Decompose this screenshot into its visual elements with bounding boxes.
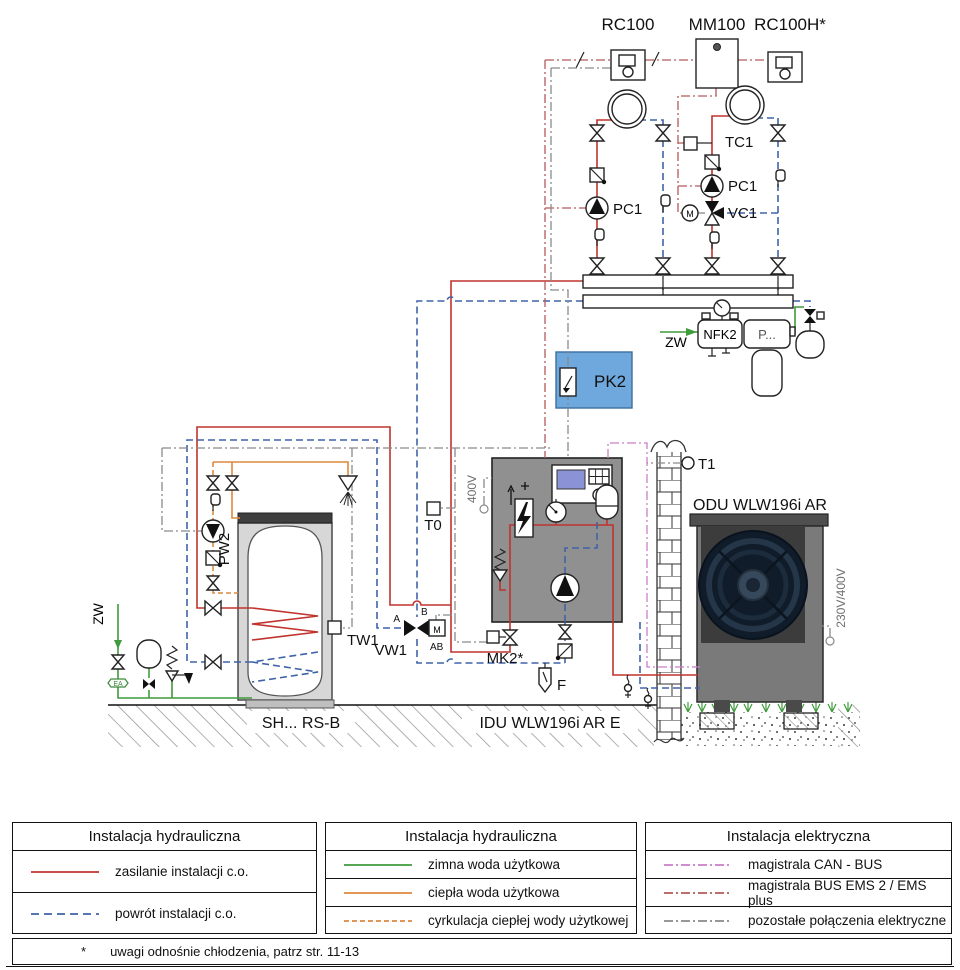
gate-valve-icon: [205, 655, 221, 669]
power-terminal-400v: [480, 505, 488, 513]
valve-icon: [226, 476, 238, 490]
legend-hydraulic-2: Instalacja hydrauliczna zimna woda użytk…: [325, 822, 637, 934]
valve-icon: [112, 655, 124, 669]
buffer-tank: [238, 513, 334, 708]
tc1-label: TC1: [725, 134, 753, 151]
footnote: * uwagi odnośnie chłodzenia, patrz str. …: [12, 938, 952, 965]
p-filter-label: P...: [758, 327, 776, 342]
footnote-text: uwagi odnośnie chłodzenia, patrz str. 11…: [110, 944, 359, 959]
line-sample-return: [29, 909, 101, 919]
legend-label: zimna woda użytkowa: [428, 857, 560, 872]
odu-name-label: ODU WLW196i AR: [693, 497, 827, 514]
legend-row: magistrala CAN - BUS: [646, 851, 951, 879]
legend-label: magistrala BUS EMS 2 / EMS plus: [748, 878, 951, 908]
odu-foot: [714, 700, 730, 712]
mm100-module: [696, 39, 738, 88]
legend-row: magistrala BUS EMS 2 / EMS plus: [646, 879, 951, 907]
f-filter-icon: [539, 663, 551, 692]
sensor-tc1-icon: [684, 137, 712, 150]
valve-icon: [207, 576, 219, 590]
pw2-label: PW2: [216, 533, 233, 566]
v400-label: 400V: [465, 475, 479, 503]
t0-label: T0: [424, 517, 442, 534]
rc100h-controller: [768, 52, 802, 82]
line-sample-circulation: [342, 916, 414, 926]
tank-name-label: SH... RS-B: [262, 715, 340, 732]
tw1-sensor: [328, 621, 341, 634]
v230-label: 230V/400V: [834, 568, 848, 627]
vw1-motor-label: M: [433, 625, 441, 635]
legend-row: cyrkulacja ciepłej wody użytkowej: [326, 907, 636, 934]
legend-label: zasilanie instalacji c.o.: [115, 864, 249, 879]
nfk2-filling-group: [698, 300, 795, 396]
odu-unit: [690, 514, 828, 712]
t0-sensor: [427, 502, 440, 515]
vw1-port-a: A: [393, 614, 400, 625]
vw1-port-b: B: [421, 607, 428, 618]
odu-top-cap: [690, 514, 828, 526]
legend-label: cyrkulacja ciepłej wody użytkowej: [428, 913, 628, 928]
valve-icon: [705, 258, 719, 274]
pump-pc1-icon: [701, 175, 723, 197]
page-bottom-rule: [6, 966, 954, 967]
vw1-label: VW1: [374, 642, 407, 659]
nfk2-label: NFK2: [703, 327, 736, 342]
odu-fan: [699, 531, 807, 639]
grass: [684, 702, 852, 712]
pk2-label: PK2: [594, 372, 626, 391]
heating-circuit-1: [586, 90, 670, 274]
check-valve-icon: [590, 168, 606, 184]
valve-icon: [590, 125, 604, 141]
vc1-label: VC1: [728, 205, 757, 222]
legend-row: ciepła woda użytkowa: [326, 879, 636, 907]
tank-top-cap: [238, 513, 332, 523]
check-valve-icon: [556, 644, 572, 660]
footnote-marker: *: [81, 944, 86, 959]
vc1-motor-label: M: [686, 209, 694, 219]
pc1-left-label: PC1: [613, 201, 642, 218]
power-terminal-230v: [826, 637, 834, 645]
rc100-controller: [611, 50, 645, 80]
manifold: [583, 275, 793, 308]
vw1-port-ab: AB: [430, 642, 444, 653]
gate-valve-icon: [205, 601, 221, 615]
valve-icon: [656, 258, 670, 274]
legend-label: ciepła woda użytkowa: [428, 885, 559, 900]
valve-icon: [771, 125, 785, 141]
filter-cup: [752, 350, 782, 396]
line-sample-ems-bus: [662, 888, 734, 898]
rc100h-label: RC100H*: [754, 15, 826, 34]
legend-title: Instalacja hydrauliczna: [13, 823, 316, 851]
idu-name-label: IDU WLW196i AR E: [479, 715, 620, 732]
line-sample-other-electrical: [662, 916, 734, 926]
valve-icon: [207, 476, 219, 490]
legend-electrical: Instalacja elektryczna magistrala CAN - …: [645, 822, 952, 934]
pump-idu-icon: [551, 574, 579, 602]
legend-title: Instalacja hydrauliczna: [326, 823, 636, 851]
pk2-relay-symbol: [560, 368, 576, 396]
vent-cocks: [625, 675, 652, 709]
mk2-label: MK2*: [487, 650, 524, 667]
valve-icon: [559, 625, 571, 639]
mk2-sensor: [487, 631, 506, 643]
expansion-vessel-icon: [137, 640, 161, 689]
legend-row: zasilanie instalacji c.o.: [13, 851, 316, 893]
legend-row: powrót instalacji c.o.: [13, 893, 316, 934]
legend-label: pozostałe połączenia elektryczne: [748, 913, 946, 928]
f-label: F: [557, 677, 566, 694]
rc100-label: RC100: [602, 15, 655, 34]
check-valve-icon: [705, 155, 721, 171]
zw-tank-label: ZW: [90, 602, 106, 625]
installation-diagram: RC100 MM100 RC100H* TC1 PC1 PC1 VC1 M PK…: [0, 0, 960, 815]
t1-sensor: [682, 457, 694, 469]
legend-row: pozostałe połączenia elektryczne: [646, 907, 951, 934]
line-sample-supply: [29, 867, 101, 877]
thermometer-icon: [211, 494, 220, 511]
odu-foot: [786, 700, 802, 712]
line-sample-hot-water: [342, 888, 414, 898]
valve-icon: [590, 258, 604, 274]
legend-label: magistrala CAN - BUS: [748, 857, 882, 872]
schematic-page: RC100 MM100 RC100H* TC1 PC1 PC1 VC1 M PK…: [0, 0, 960, 970]
foundation-block: [700, 713, 734, 729]
pump-pc1-icon: [586, 197, 608, 219]
valve-icon: [771, 258, 785, 274]
fill-valve-icon: [804, 309, 824, 323]
zw-manifold-label: ZW: [665, 334, 688, 350]
legend-hydraulic-1: Instalacja hydrauliczna zasilanie instal…: [12, 822, 317, 934]
foundation-block: [784, 713, 818, 729]
valve-icon: [656, 125, 670, 141]
pc1-right-label: PC1: [728, 178, 757, 195]
legend-row: zimna woda użytkowa: [326, 851, 636, 879]
mm100-label: MM100: [689, 15, 746, 34]
expansion-vessel-icon: [596, 485, 618, 519]
safety-valve-icon: [166, 646, 193, 684]
line-sample-cold-water: [342, 860, 414, 870]
line-sample-can-bus: [662, 860, 734, 870]
legend-label: powrót instalacji c.o.: [115, 906, 237, 921]
t1-label: T1: [698, 456, 716, 473]
legend-title: Instalacja elektryczna: [646, 823, 951, 851]
outdoor-ground: [681, 702, 860, 747]
shower-icon: [339, 476, 357, 506]
expansion-vessel-manifold: [796, 309, 824, 358]
ea-label: EA: [113, 681, 123, 688]
